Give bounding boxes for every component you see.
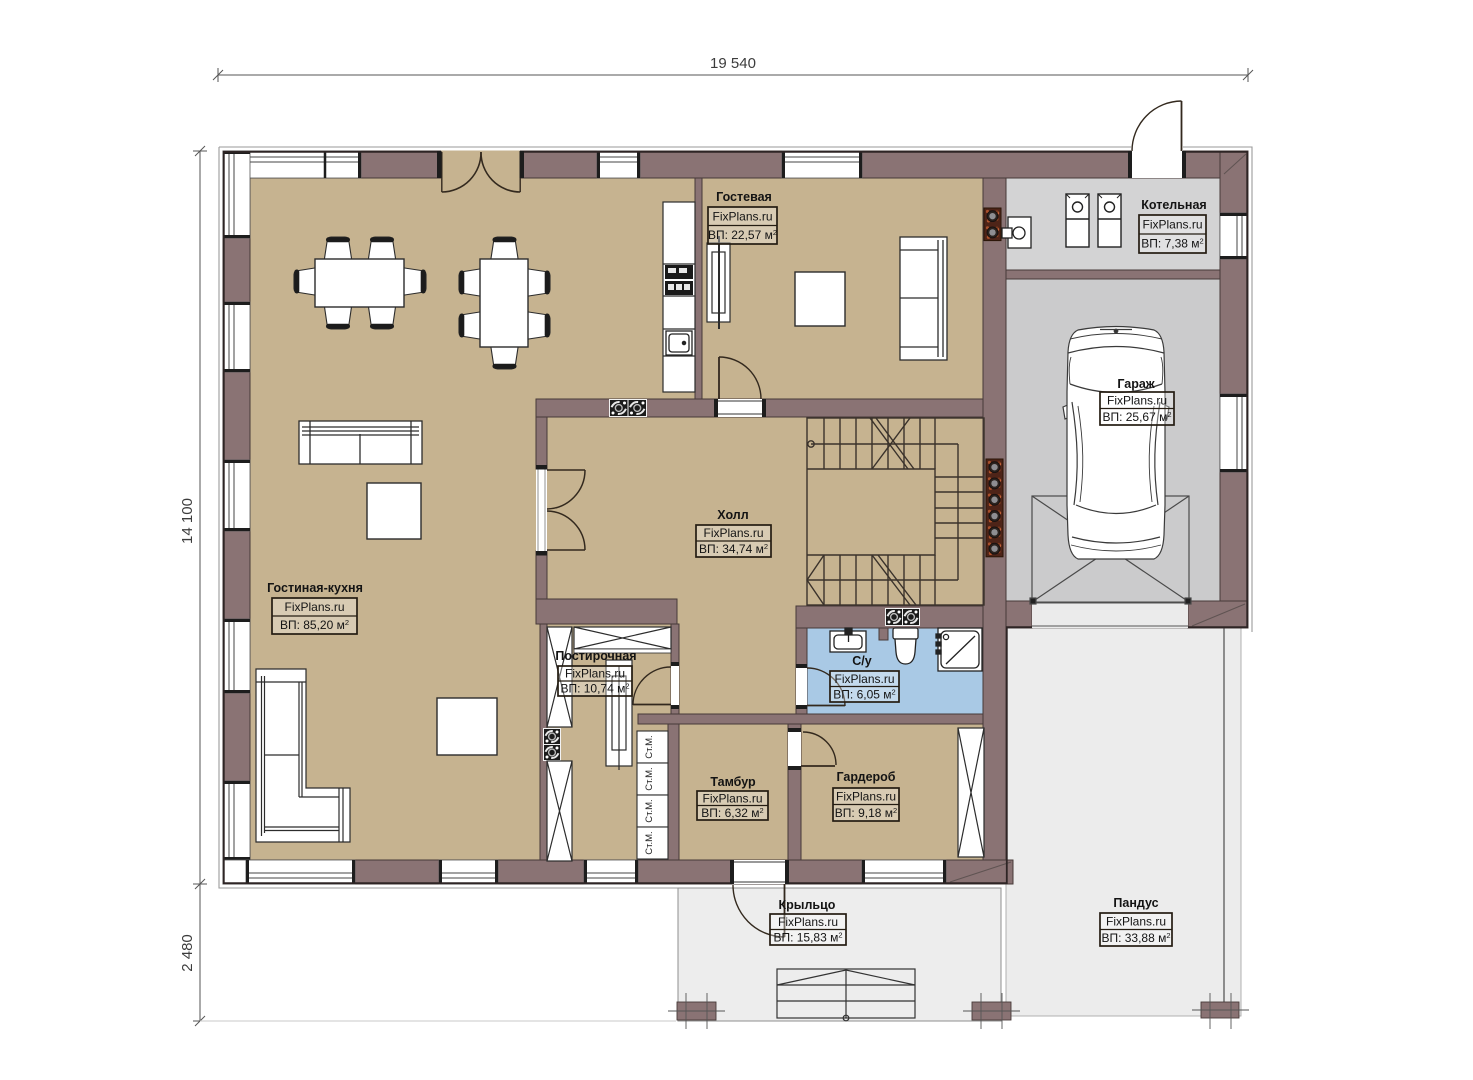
svg-text:ВП: 25,67 м2: ВП: 25,67 м2	[1102, 410, 1171, 424]
svg-text:FixPlans.ru: FixPlans.ru	[1106, 914, 1166, 928]
svg-text:Ст.М.: Ст.М.	[644, 767, 655, 790]
svg-text:ВП: 34,74 м2: ВП: 34,74 м2	[699, 542, 768, 556]
svg-text:FixPlans.ru: FixPlans.ru	[778, 915, 838, 929]
svg-text:FixPlans.ru: FixPlans.ru	[1107, 393, 1167, 407]
svg-text:Пандус: Пандус	[1113, 896, 1158, 910]
svg-text:Гардероб: Гардероб	[836, 770, 895, 784]
svg-text:ВП: 85,20 м2: ВП: 85,20 м2	[280, 618, 349, 632]
svg-text:ВП: 33,88 м2: ВП: 33,88 м2	[1101, 931, 1170, 945]
svg-text:Гараж: Гараж	[1117, 377, 1154, 391]
svg-text:ВП: 7,38 м2: ВП: 7,38 м2	[1141, 237, 1203, 251]
svg-text:Ст.М.: Ст.М.	[644, 799, 655, 822]
svg-text:ВП: 22,57 м2: ВП: 22,57 м2	[708, 228, 777, 242]
svg-text:Тамбур: Тамбур	[710, 775, 756, 789]
svg-text:Холл: Холл	[717, 508, 748, 522]
svg-text:ВП: 6,32 м2: ВП: 6,32 м2	[701, 806, 763, 820]
svg-text:ВП: 9,18 м2: ВП: 9,18 м2	[835, 806, 897, 820]
svg-text:FixPlans.ru: FixPlans.ru	[702, 791, 762, 805]
svg-text:Котельная: Котельная	[1141, 198, 1206, 212]
svg-text:Гостевая: Гостевая	[716, 190, 772, 204]
svg-text:ВП: 10,74 м2: ВП: 10,74 м2	[560, 682, 629, 696]
svg-text:FixPlans.ru: FixPlans.ru	[836, 789, 896, 803]
svg-text:2 480: 2 480	[179, 934, 196, 972]
svg-text:Ст.М.: Ст.М.	[644, 831, 655, 854]
svg-text:FixPlans.ru: FixPlans.ru	[284, 600, 344, 614]
svg-text:FixPlans.ru: FixPlans.ru	[712, 209, 772, 223]
svg-text:Крыльцо: Крыльцо	[779, 898, 836, 912]
svg-text:ВП: 15,83 м2: ВП: 15,83 м2	[773, 930, 842, 944]
svg-text:FixPlans.ru: FixPlans.ru	[565, 667, 625, 681]
svg-text:Постирочная: Постирочная	[555, 649, 636, 663]
svg-text:FixPlans.ru: FixPlans.ru	[703, 526, 763, 540]
svg-text:FixPlans.ru: FixPlans.ru	[1142, 218, 1202, 232]
svg-text:С/у: С/у	[852, 654, 872, 668]
svg-text:ВП: 6,05 м2: ВП: 6,05 м2	[833, 687, 895, 701]
svg-text:Гостиная-кухня: Гостиная-кухня	[267, 581, 363, 595]
svg-text:FixPlans.ru: FixPlans.ru	[834, 672, 894, 686]
svg-text:14 100: 14 100	[179, 498, 196, 544]
svg-text:19 540: 19 540	[710, 55, 756, 72]
svg-text:Ст.М.: Ст.М.	[644, 735, 655, 758]
